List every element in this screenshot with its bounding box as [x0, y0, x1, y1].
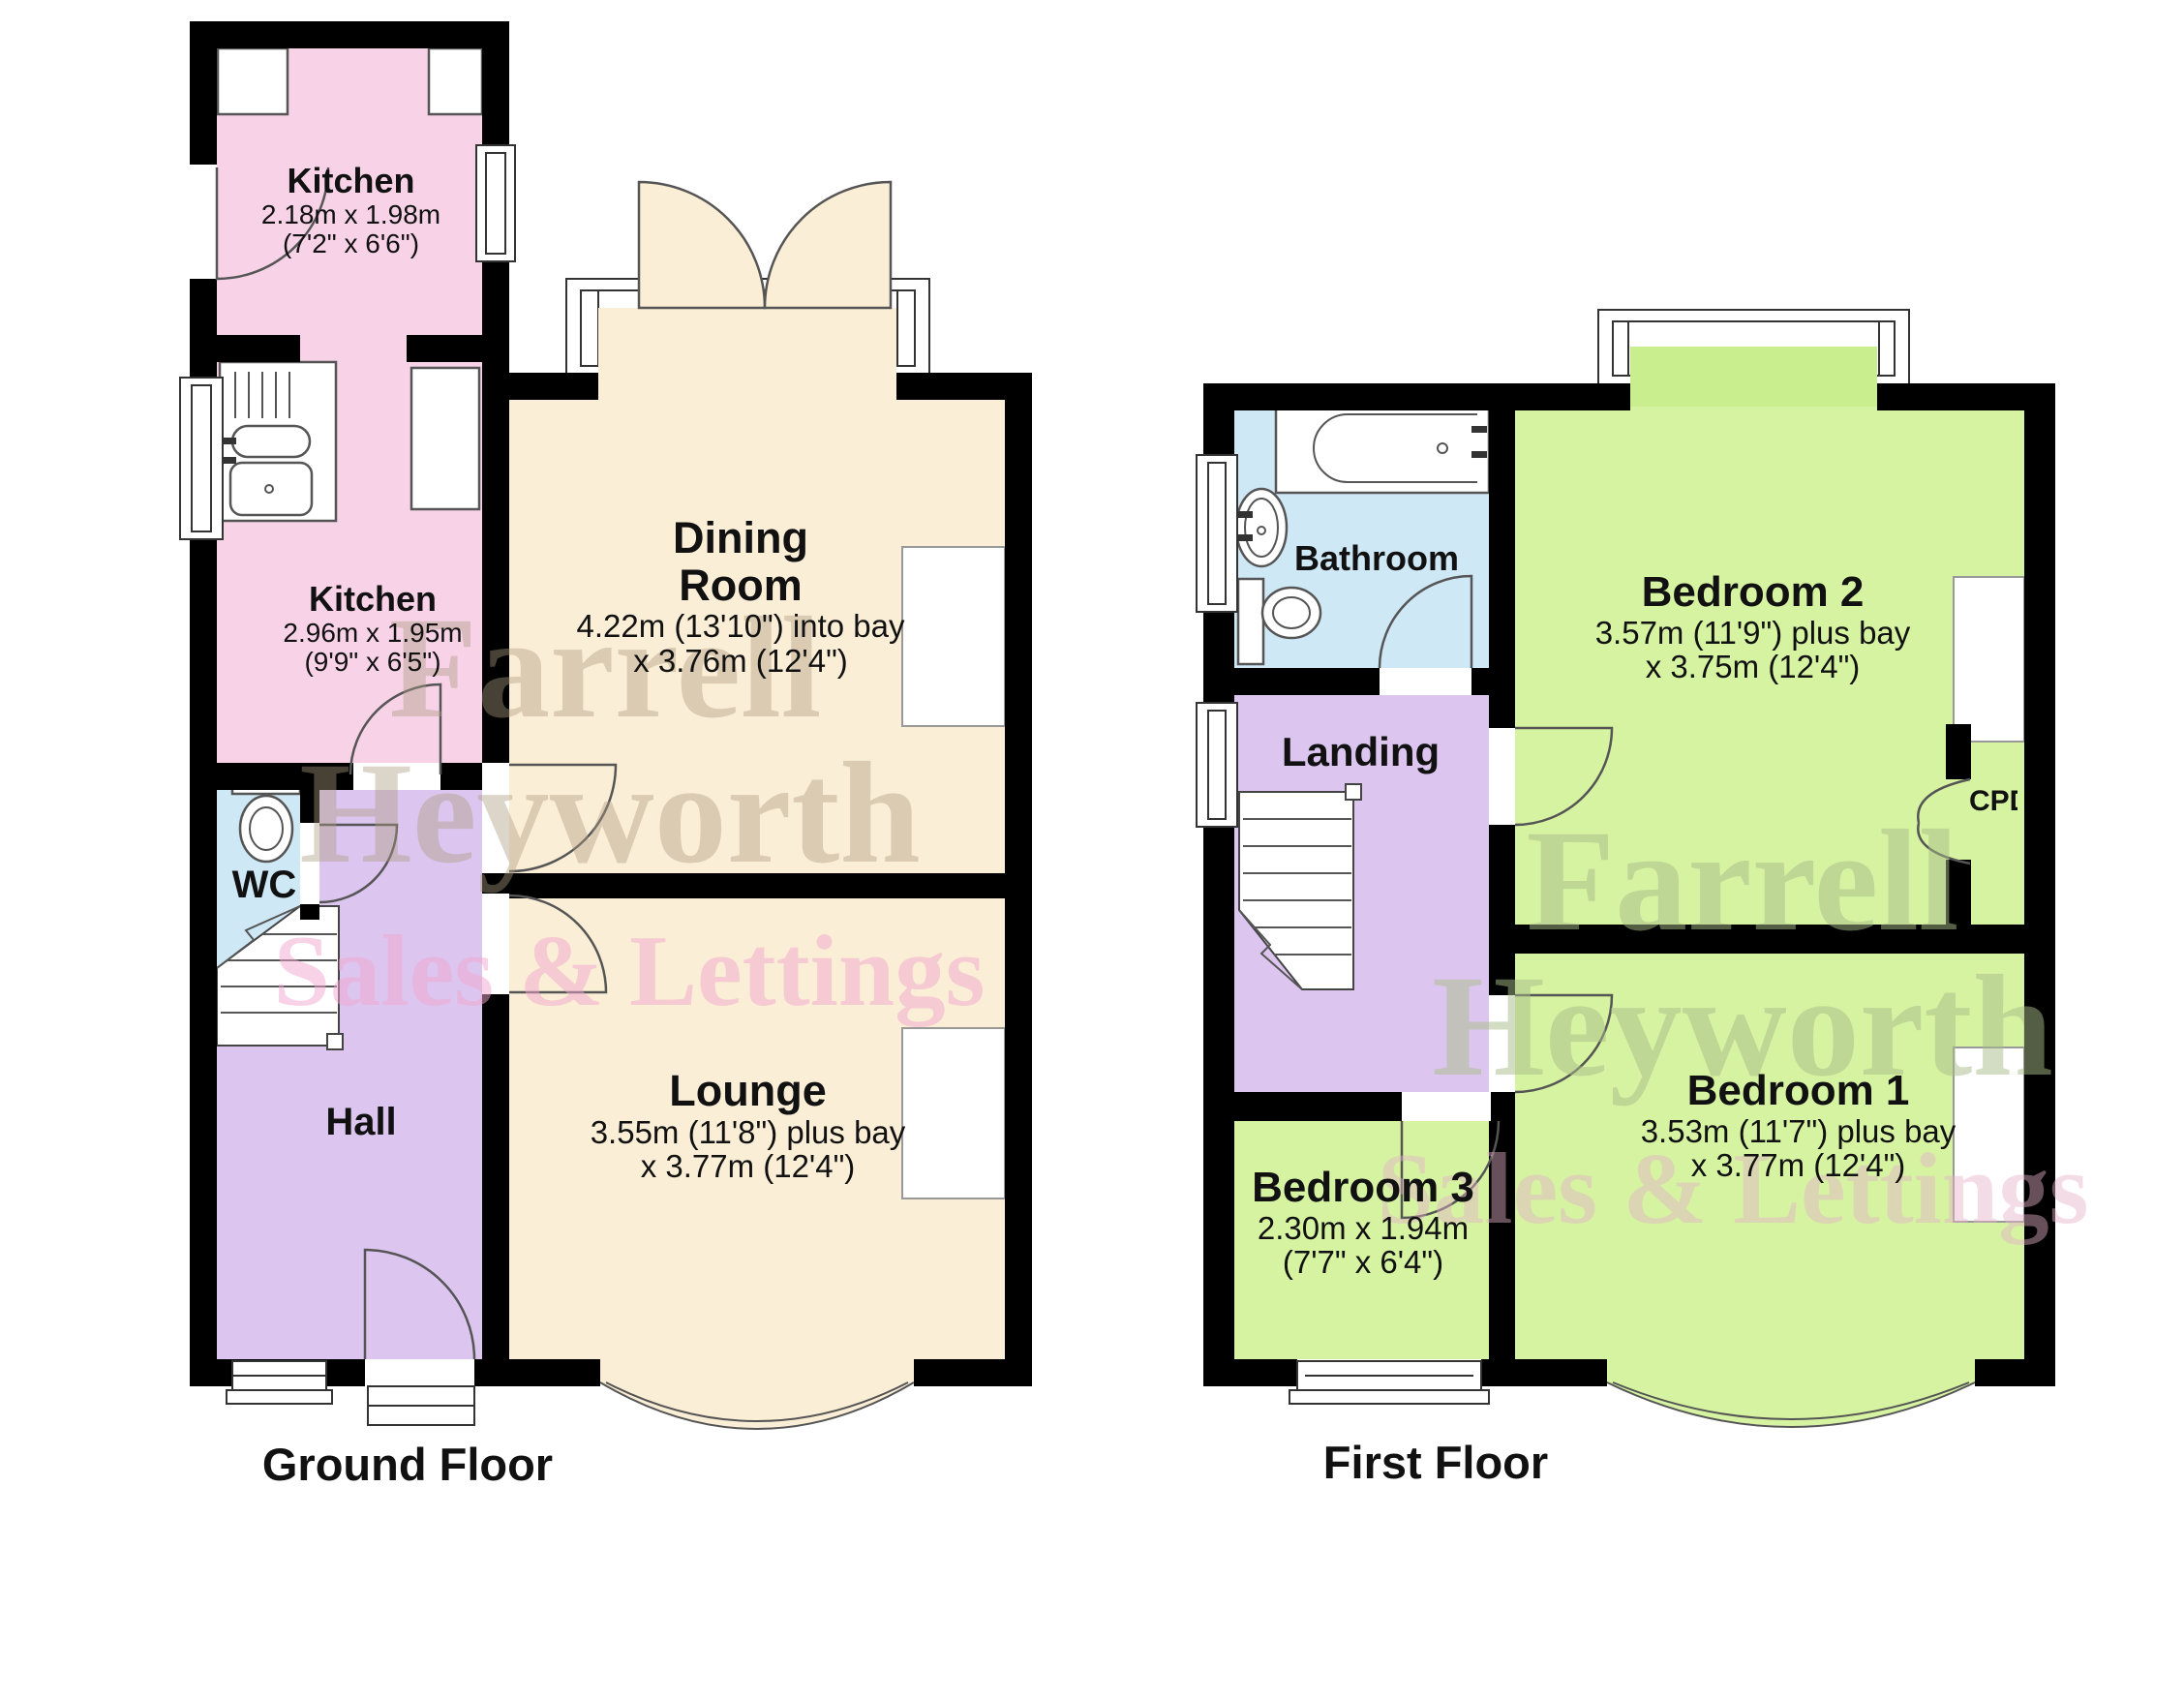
room-name: Dining — [518, 515, 963, 562]
label-bedroom3: Bedroom 3 2.30m x 1.94m (7'7" x 6'4") — [1241, 1165, 1485, 1280]
room-name: Bedroom 1 — [1578, 1068, 2018, 1114]
room-dim: (7'2" x 6'6") — [218, 229, 484, 258]
room-dim: (7'7" x 6'4") — [1241, 1245, 1485, 1280]
label-cupboard: CPD — [1969, 786, 2017, 817]
room-dim: x 3.77m (12'4") — [523, 1149, 973, 1184]
room-dim: x 3.76m (12'4") — [518, 644, 963, 679]
room-dim: 4.22m (13'10") into bay — [518, 609, 963, 644]
label-first-floor: First Floor — [1286, 1439, 1586, 1488]
label-hall: Hall — [288, 1102, 434, 1143]
room-name: Kitchen — [218, 163, 484, 200]
room-name: Bedroom 2 — [1537, 569, 1968, 616]
floorplan-canvas: Farrell Heyworth Sales & Lettings Farrel… — [0, 0, 2184, 1699]
room-name: Room — [518, 562, 963, 610]
label-lounge: Lounge 3.55m (11'8") plus bay x 3.77m (1… — [523, 1068, 973, 1184]
label-bedroom2: Bedroom 2 3.57m (11'9") plus bay x 3.75m… — [1537, 569, 1968, 684]
label-kitchen-main: Kitchen 2.96m x 1.95m (9'9" x 6'5") — [232, 581, 513, 677]
room-dim: 2.96m x 1.95m — [232, 619, 513, 648]
room-name: Lounge — [523, 1068, 973, 1115]
label-wc: WC — [221, 865, 308, 906]
room-dim: 3.55m (11'8") plus bay — [523, 1115, 973, 1150]
label-bathroom: Bathroom — [1251, 540, 1502, 578]
room-dim: x 3.75m (12'4") — [1537, 650, 1968, 684]
room-dim: 3.53m (11'7") plus bay — [1578, 1114, 2018, 1149]
label-bedroom1: Bedroom 1 3.53m (11'7") plus bay x 3.77m… — [1578, 1068, 2018, 1183]
room-name: Bedroom 3 — [1241, 1165, 1485, 1211]
room-dim: (9'9" x 6'5") — [232, 648, 513, 677]
room-name: Kitchen — [232, 581, 513, 619]
room-dim: x 3.77m (12'4") — [1578, 1148, 2018, 1183]
label-landing: Landing — [1247, 730, 1474, 774]
room-dim: 3.57m (11'9") plus bay — [1537, 616, 1968, 651]
room-dim: 2.30m x 1.94m — [1241, 1211, 1485, 1246]
label-ground-floor: Ground Floor — [248, 1441, 567, 1490]
label-dining-room: Dining Room 4.22m (13'10") into bay x 3.… — [518, 515, 963, 678]
label-kitchen-rear: Kitchen 2.18m x 1.98m (7'2" x 6'6") — [218, 163, 484, 258]
room-dim: 2.18m x 1.98m — [218, 200, 484, 229]
